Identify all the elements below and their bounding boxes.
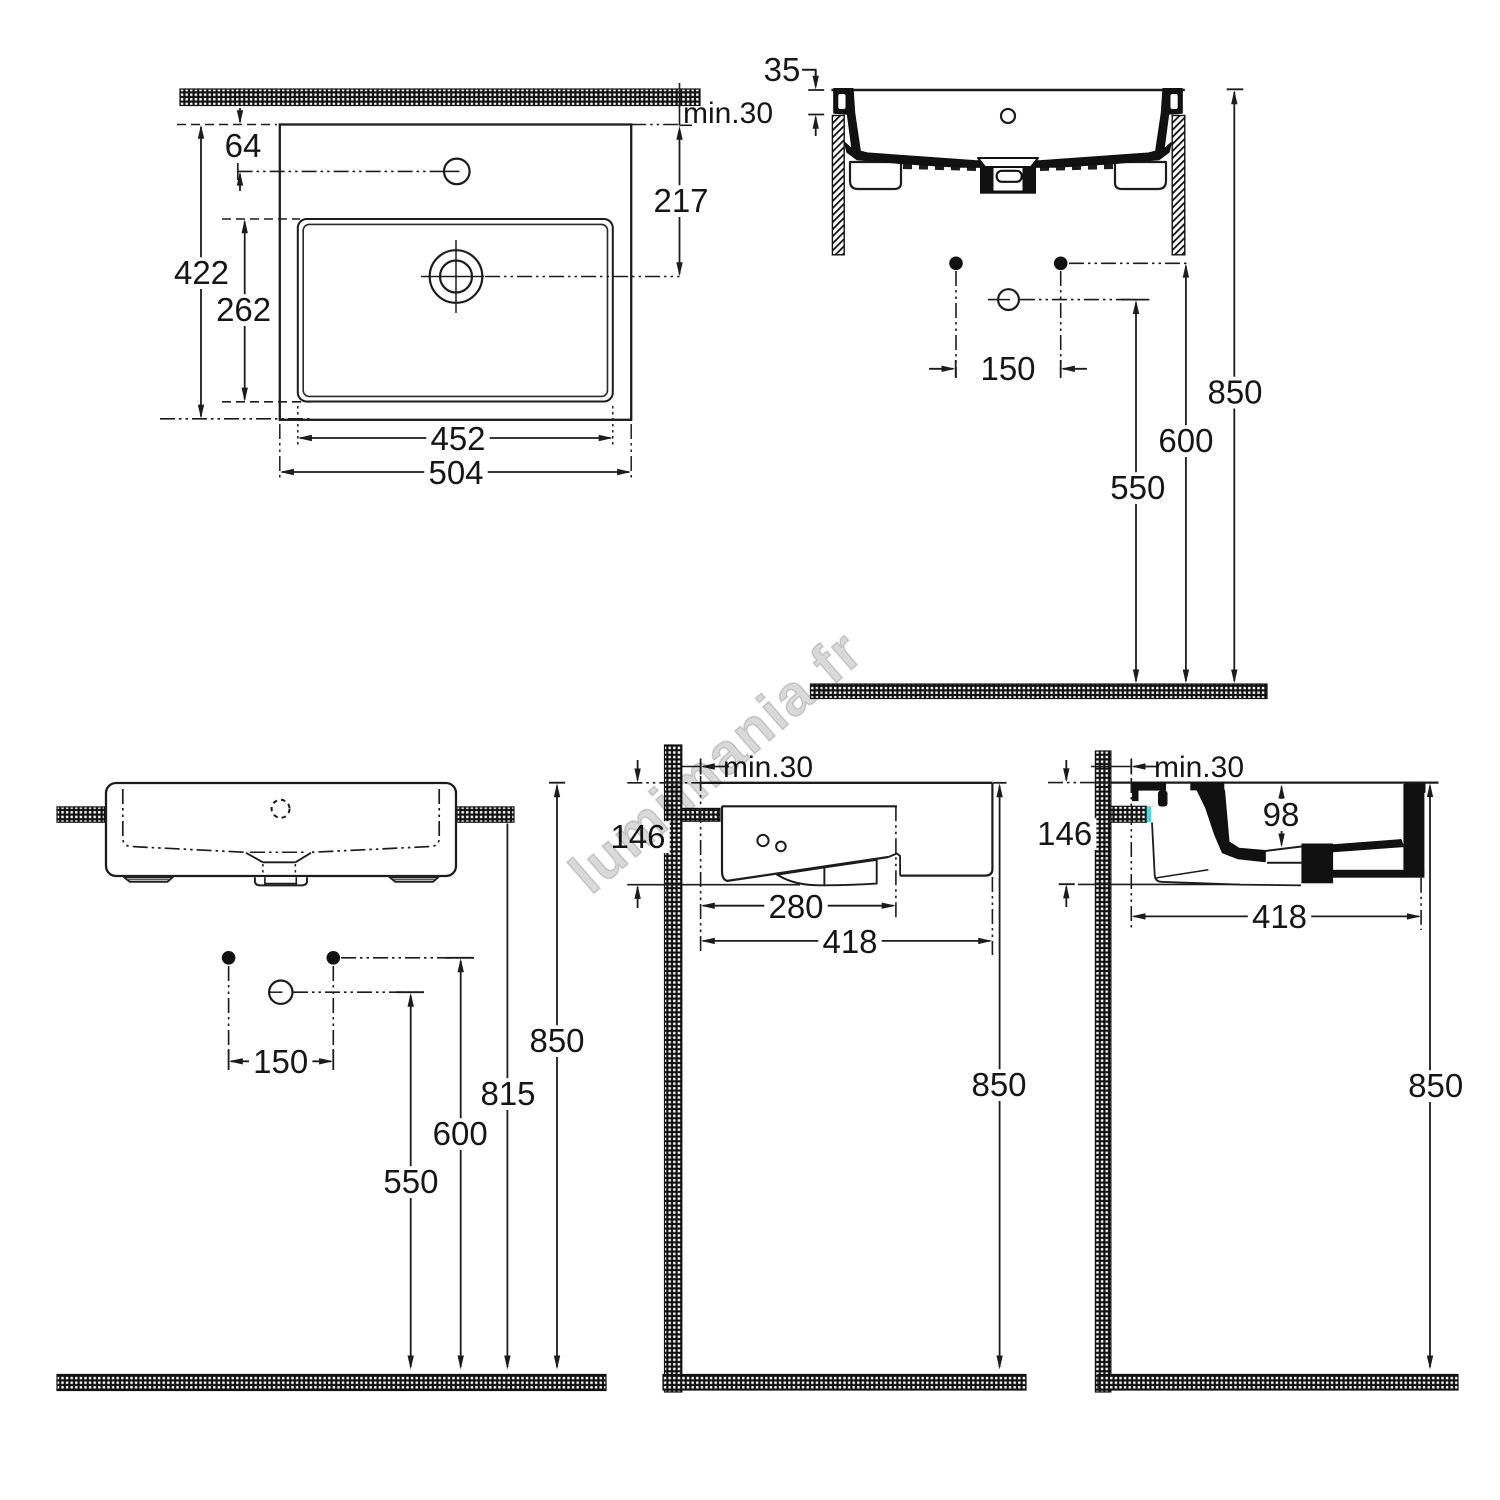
svg-text:150: 150	[980, 350, 1035, 387]
svg-text:min.30: min.30	[1154, 751, 1244, 784]
svg-text:418: 418	[1252, 898, 1307, 935]
svg-text:35: 35	[764, 51, 801, 88]
svg-text:815: 815	[480, 1075, 535, 1112]
svg-text:262: 262	[216, 291, 271, 328]
svg-text:64: 64	[225, 127, 262, 164]
svg-text:550: 550	[383, 1163, 438, 1200]
svg-text:600: 600	[433, 1115, 488, 1152]
svg-text:504: 504	[428, 454, 483, 491]
svg-text:min.30: min.30	[683, 97, 773, 130]
svg-text:150: 150	[253, 1043, 308, 1080]
svg-text:850: 850	[1408, 1067, 1463, 1104]
svg-text:452: 452	[430, 420, 485, 457]
svg-text:422: 422	[174, 254, 229, 291]
svg-text:850: 850	[1207, 374, 1262, 411]
svg-text:850: 850	[529, 1022, 584, 1059]
svg-text:146: 146	[1037, 815, 1092, 852]
svg-text:280: 280	[768, 888, 823, 925]
svg-text:850: 850	[971, 1066, 1026, 1103]
svg-text:550: 550	[1110, 469, 1165, 506]
svg-text:600: 600	[1158, 422, 1213, 459]
svg-text:98: 98	[1263, 796, 1300, 833]
svg-text:418: 418	[822, 923, 877, 960]
svg-text:217: 217	[653, 182, 708, 219]
